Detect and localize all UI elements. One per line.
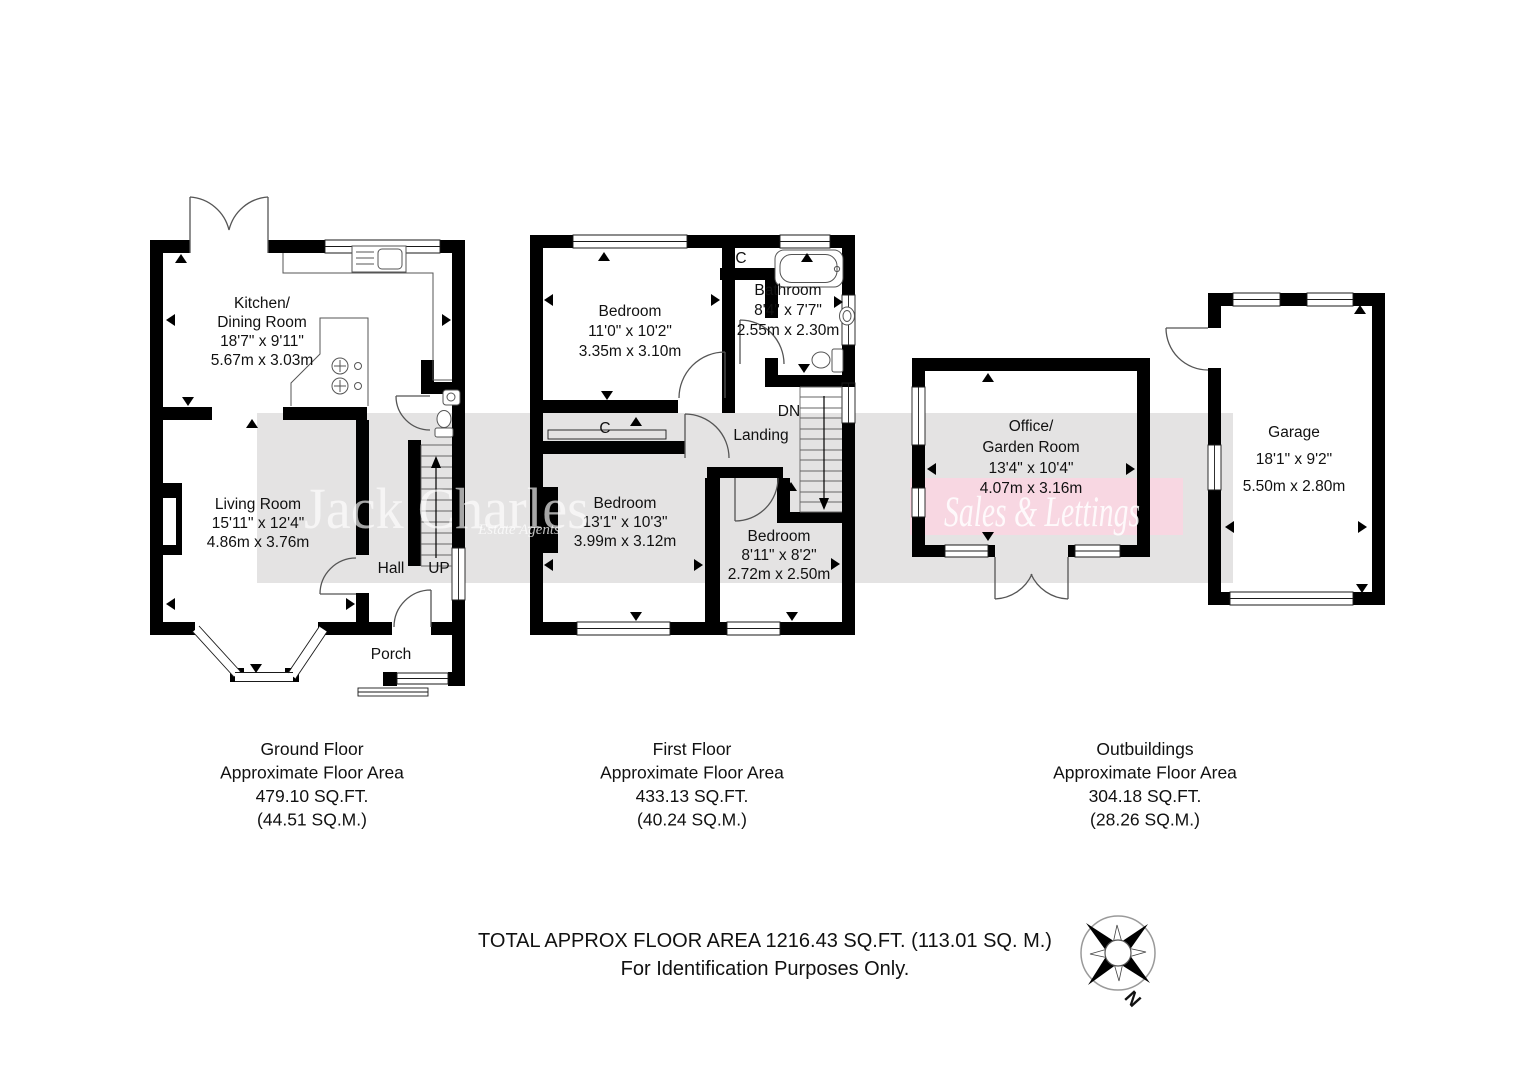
caption-sqm: (40.24 SQ.M.) (637, 810, 747, 830)
stove-symbol (332, 358, 362, 394)
hall-label: Hall (378, 560, 405, 577)
office-dims-imperial: 13'4" x 10'4" (988, 460, 1073, 477)
caption-sqft: 479.10 SQ.FT. (256, 786, 369, 806)
porch-label: Porch (371, 646, 412, 663)
bedroom3-dims-imperial: 8'11" x 8'2" (741, 547, 816, 564)
up-label: UP (428, 560, 450, 577)
kitchen-dims-metric: 5.67m x 3.03m (211, 352, 314, 369)
living-room-label: Living Room (215, 496, 301, 513)
french-doors-swing (190, 197, 268, 253)
basin-symbol (840, 307, 855, 325)
caption-sqft: 304.18 SQ.FT. (1089, 786, 1202, 806)
caption-title: Outbuildings (1096, 739, 1194, 759)
garage-dims-imperial: 18'1" x 9'2" (1256, 451, 1332, 468)
bedroom2-dims-metric: 3.99m x 3.12m (574, 533, 677, 550)
bedroom3-label: Bedroom (748, 528, 811, 545)
toilet-symbol (435, 411, 453, 438)
kitchen-dims-imperial: 18'7" x 9'11" (220, 333, 304, 350)
watermark-tagline: Estate Agents (477, 522, 560, 538)
caption-sqm: (28.26 SQ.M.) (1090, 810, 1200, 830)
caption-sqft: 433.13 SQ.FT. (636, 786, 749, 806)
bathroom-dims-imperial: 8'4" x 7'7" (754, 302, 822, 319)
floorplan-canvas: Kitchen/ Dining Room 18'7" x 9'11" 5.67m… (0, 0, 1528, 1080)
bedroom2-label: Bedroom (594, 495, 657, 512)
basin-symbol (443, 390, 460, 405)
bedroom1-dims-imperial: 11'0" x 10'2" (588, 323, 672, 340)
bedroom2-dims-imperial: 13'1" x 10'3" (582, 514, 667, 531)
bathroom-label: Bathroom (754, 282, 821, 299)
kitchen-label-2: Dining Room (217, 314, 307, 331)
bathroom-dims-metric: 2.55m x 2.30m (737, 322, 840, 339)
caption-subtitle: Approximate Floor Area (220, 763, 404, 783)
compass-rose-icon: N (1081, 916, 1155, 1012)
floorplan-page: Kitchen/ Dining Room 18'7" x 9'11" 5.67m… (0, 0, 1528, 1080)
ground-floor-caption: Ground Floor Approximate Floor Area 479.… (220, 739, 404, 830)
kitchen-label: Kitchen/ (234, 295, 291, 312)
front-door-swing (394, 590, 431, 627)
compass-north-label: N (1120, 987, 1145, 1011)
caption-title: Ground Floor (260, 739, 363, 759)
living-room-dims-imperial: 15'11" x 12'4" (212, 515, 304, 532)
garage-dims-metric: 5.50m x 2.80m (1243, 478, 1346, 495)
office-label: Office/ (1009, 418, 1054, 435)
caption-subtitle: Approximate Floor Area (600, 763, 784, 783)
landing-label: Landing (733, 427, 788, 444)
garage-door-swing (1166, 328, 1208, 370)
disclaimer: For Identification Purposes Only. (621, 958, 910, 980)
garage-label: Garage (1268, 424, 1320, 441)
bay-window (193, 626, 327, 682)
cupboard-top-label: C (735, 250, 746, 267)
living-room-dims-metric: 4.86m x 3.76m (207, 534, 310, 551)
bedroom1-dims-metric: 3.35m x 3.10m (579, 343, 682, 360)
bedroom3-dims-metric: 2.72m x 2.50m (728, 566, 831, 583)
kitchen-sink-symbol (352, 246, 406, 272)
first-floor-caption: First Floor Approximate Floor Area 433.1… (600, 739, 784, 830)
watermark-banner: Sales & Lettings (944, 489, 1140, 536)
bedroom1-label: Bedroom (599, 303, 662, 320)
dn-label: DN (778, 403, 800, 420)
caption-subtitle: Approximate Floor Area (1053, 763, 1237, 783)
total-floor-area: TOTAL APPROX FLOOR AREA 1216.43 SQ.FT. (… (478, 930, 1052, 952)
bedroom1-door-swing (679, 352, 725, 398)
porch-step (358, 688, 428, 696)
outbuildings-caption: Outbuildings Approximate Floor Area 304.… (1053, 739, 1237, 830)
chimney-recess (163, 498, 176, 545)
cupboard-mid-label: C (599, 420, 610, 437)
caption-sqm: (44.51 SQ.M.) (257, 810, 367, 830)
caption-title: First Floor (653, 739, 732, 759)
toilet-symbol (812, 349, 843, 372)
office-label-2: Garden Room (982, 439, 1079, 456)
